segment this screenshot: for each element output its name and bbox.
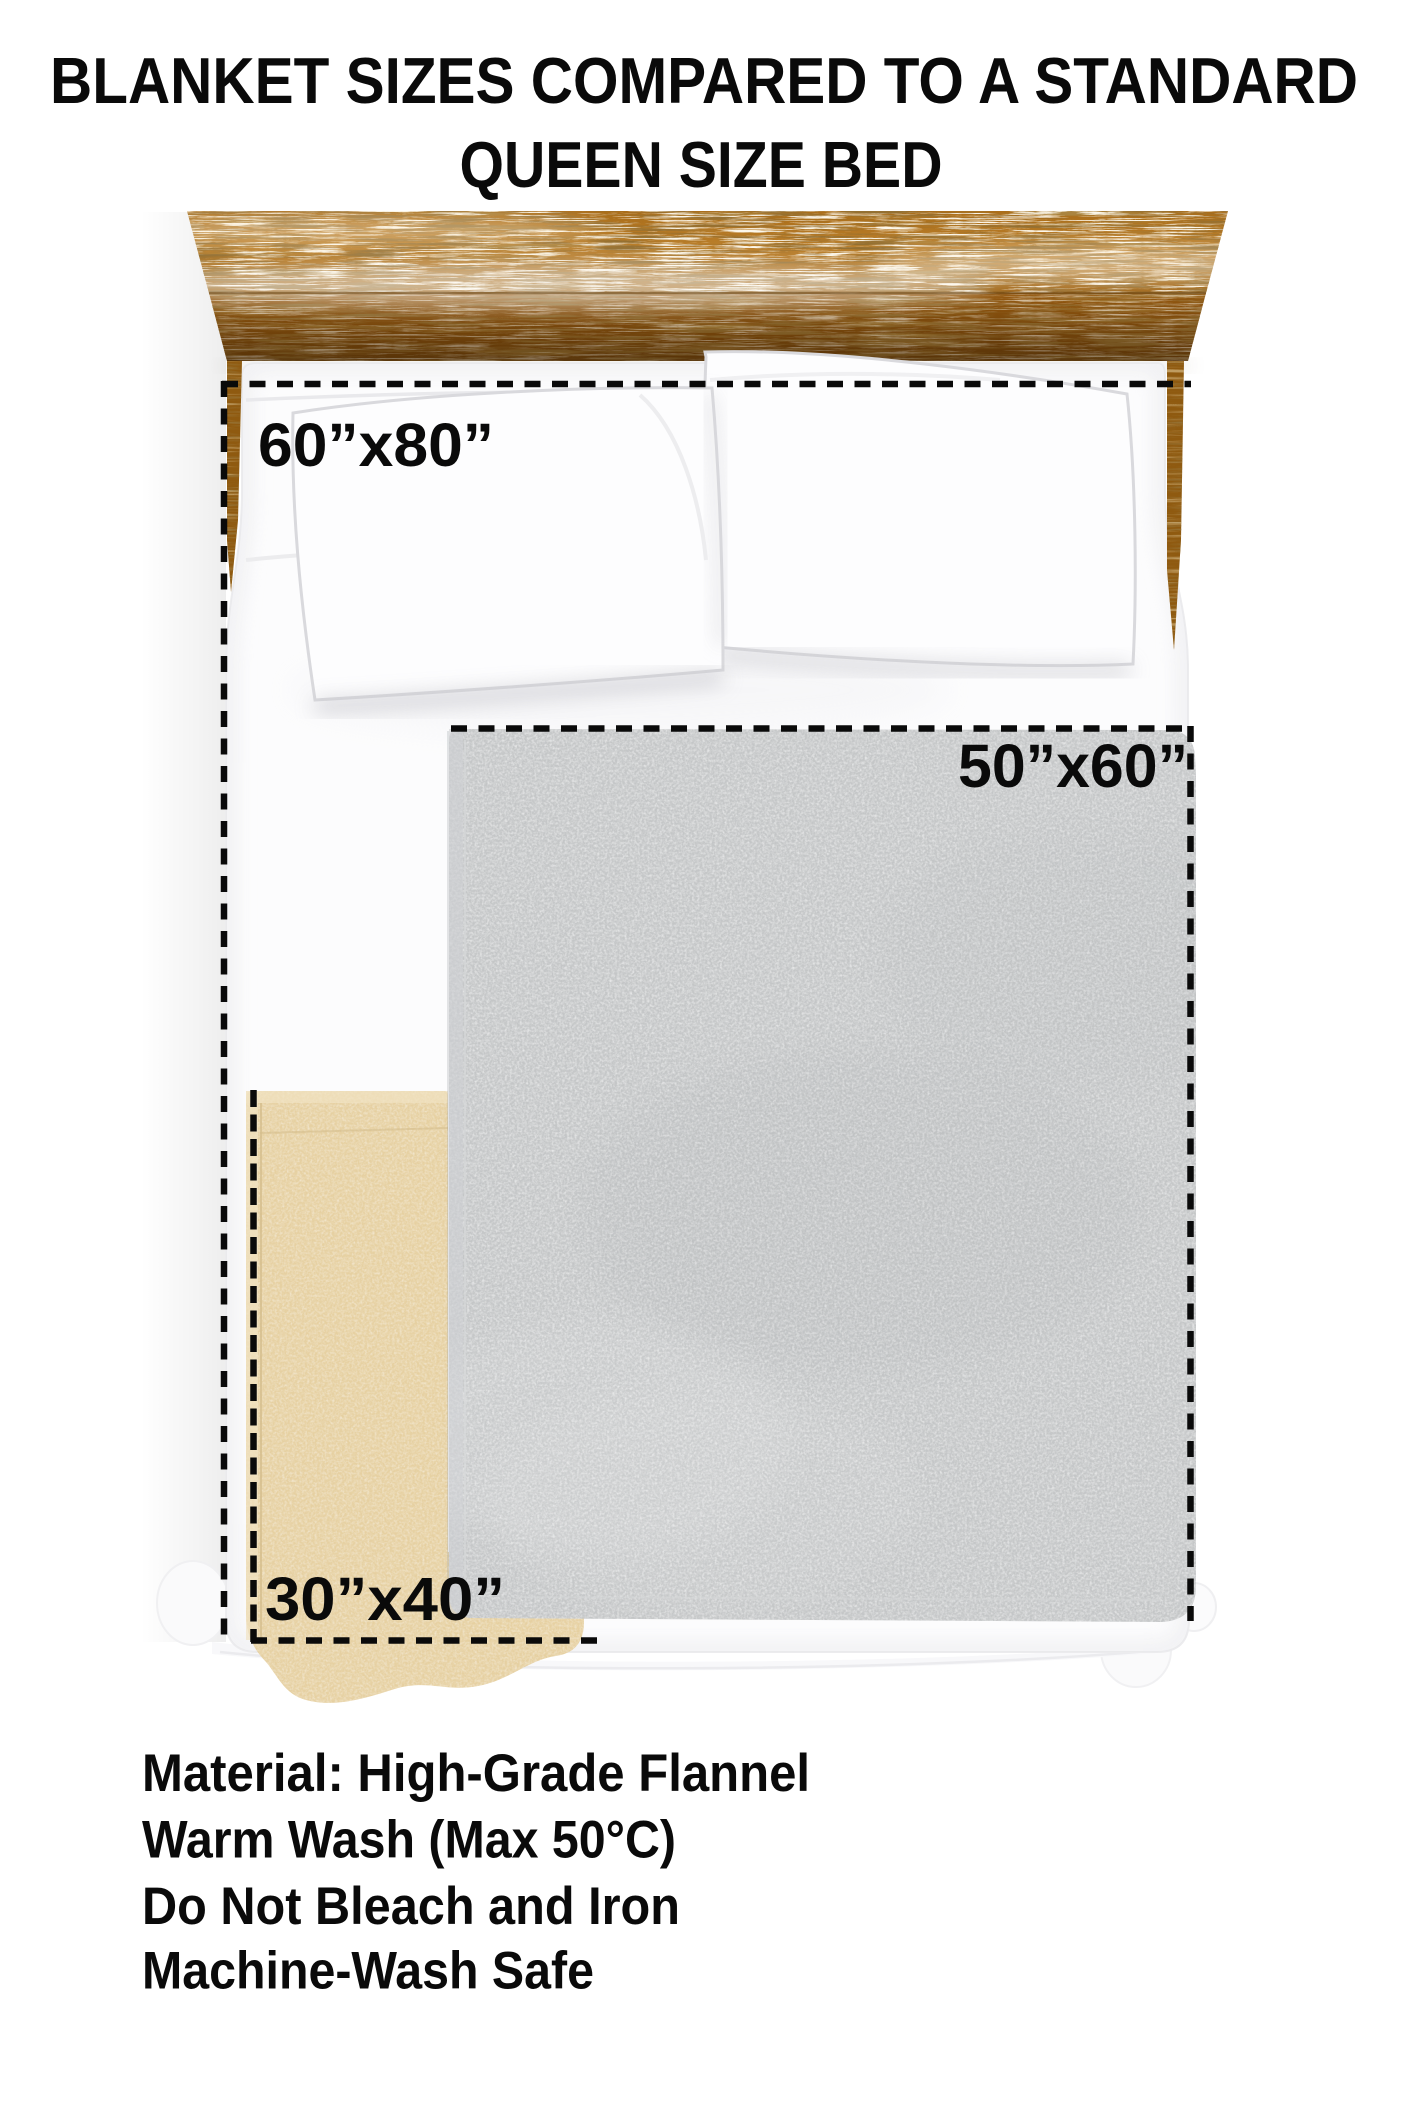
svg-text:Warm Wash (Max 50°C): Warm Wash (Max 50°C) (142, 1811, 676, 1870)
svg-text:60”x80”: 60”x80” (258, 411, 494, 479)
svg-text:Material: High-Grade Flannel: Material: High-Grade Flannel (142, 1744, 810, 1803)
svg-text:50”x60”: 50”x60” (958, 732, 1188, 800)
svg-text:BLANKET SIZES COMPARED TO A ST: BLANKET SIZES COMPARED TO A STANDARD (50, 44, 1358, 117)
svg-text:30”x40”: 30”x40” (265, 1565, 505, 1633)
svg-text:QUEEN SIZE BED: QUEEN SIZE BED (460, 128, 943, 201)
svg-text:Machine-Wash Safe: Machine-Wash Safe (142, 1942, 594, 2001)
svg-text:Do Not Bleach and Iron: Do Not Bleach and Iron (142, 1877, 680, 1936)
